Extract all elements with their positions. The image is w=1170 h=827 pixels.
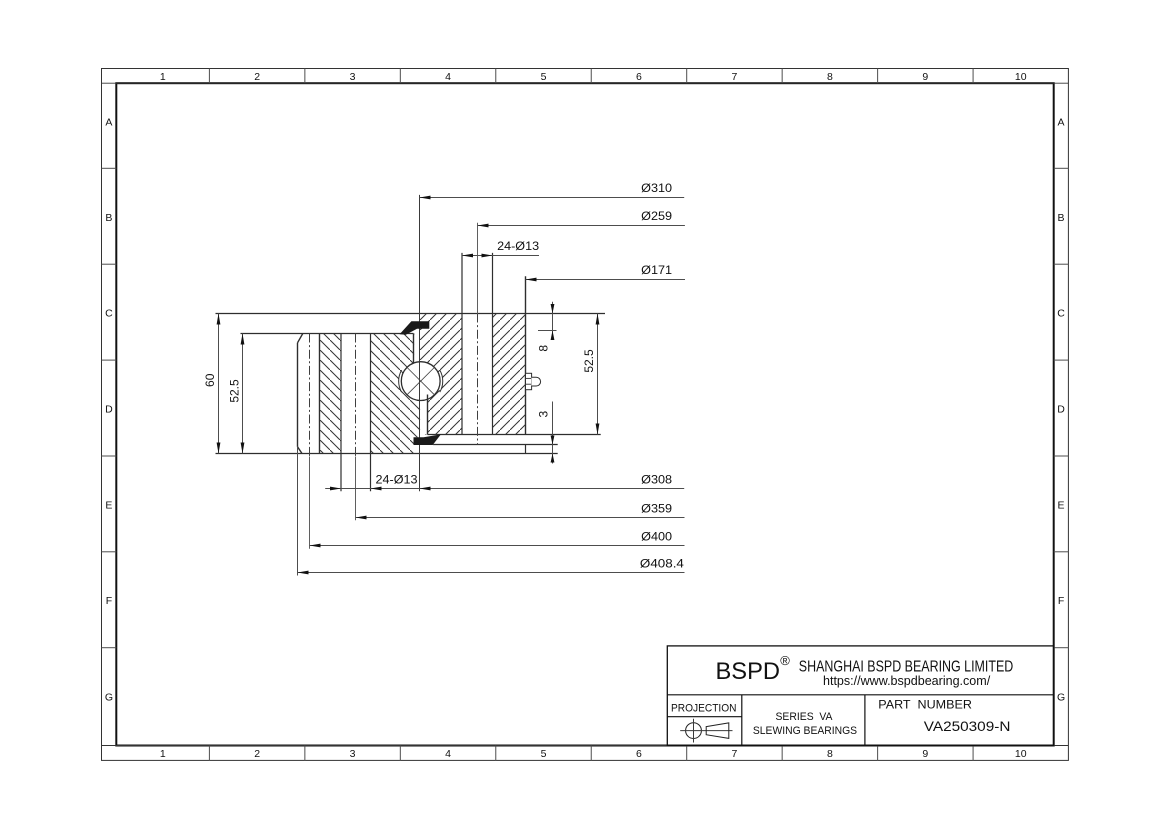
svg-text:Ø259: Ø259 [641, 209, 672, 223]
svg-text:52.5: 52.5 [582, 349, 596, 373]
svg-text:10: 10 [1015, 748, 1027, 760]
svg-text:4: 4 [445, 71, 451, 83]
svg-text:60: 60 [203, 373, 217, 387]
svg-text:G: G [105, 691, 113, 703]
svg-text:®: ® [780, 653, 790, 668]
svg-text:E: E [105, 499, 112, 511]
svg-text:1: 1 [160, 748, 166, 760]
svg-text:3: 3 [537, 411, 551, 418]
svg-text:6: 6 [636, 748, 642, 760]
svg-text:B: B [105, 212, 112, 224]
svg-text:7: 7 [732, 71, 738, 83]
svg-text:A: A [1058, 117, 1065, 129]
svg-text:8: 8 [827, 71, 833, 83]
svg-text:BSPD: BSPD [716, 658, 781, 685]
svg-text:Ø400: Ø400 [641, 529, 672, 543]
svg-text:SLEWING BEARINGS: SLEWING BEARINGS [753, 725, 857, 737]
svg-text:C: C [105, 308, 113, 320]
svg-text:SERIES VA: SERIES VA [776, 711, 833, 723]
svg-text:Ø171: Ø171 [641, 263, 672, 277]
svg-text:F: F [1058, 595, 1064, 607]
svg-text:Ø308: Ø308 [641, 472, 672, 486]
svg-text:3: 3 [350, 748, 356, 760]
svg-text:9: 9 [922, 748, 928, 760]
svg-text:F: F [106, 595, 112, 607]
svg-text:E: E [1058, 499, 1065, 511]
svg-text:52.5: 52.5 [228, 379, 242, 403]
svg-text:PROJECTION: PROJECTION [671, 703, 737, 715]
svg-text:24-Ø13: 24-Ø13 [497, 239, 539, 253]
svg-text:VA250309-N: VA250309-N [924, 719, 1011, 734]
svg-text:10: 10 [1015, 71, 1027, 83]
svg-text:Ø310: Ø310 [641, 181, 672, 195]
svg-text:PART NUMBER: PART NUMBER [878, 699, 972, 712]
svg-text:D: D [1057, 403, 1065, 415]
svg-text:8: 8 [537, 345, 551, 352]
svg-text:2: 2 [254, 748, 260, 760]
svg-text:3: 3 [350, 71, 356, 83]
svg-text:2: 2 [254, 71, 260, 83]
svg-text:B: B [1058, 212, 1065, 224]
svg-text:https://www.bspdbearing.com/: https://www.bspdbearing.com/ [823, 673, 991, 688]
svg-text:5: 5 [541, 71, 547, 83]
svg-text:24-Ø13: 24-Ø13 [376, 472, 418, 486]
svg-text:C: C [1057, 308, 1065, 320]
svg-text:D: D [105, 403, 113, 415]
svg-text:Ø359: Ø359 [641, 501, 672, 515]
svg-text:1: 1 [160, 71, 166, 83]
svg-text:8: 8 [827, 748, 833, 760]
svg-text:9: 9 [922, 71, 928, 83]
svg-text:A: A [105, 117, 112, 129]
svg-text:5: 5 [541, 748, 547, 760]
svg-text:G: G [1057, 691, 1065, 703]
svg-text:Ø408.4: Ø408.4 [640, 556, 684, 570]
svg-text:4: 4 [445, 748, 451, 760]
svg-text:7: 7 [732, 748, 738, 760]
svg-text:6: 6 [636, 71, 642, 83]
